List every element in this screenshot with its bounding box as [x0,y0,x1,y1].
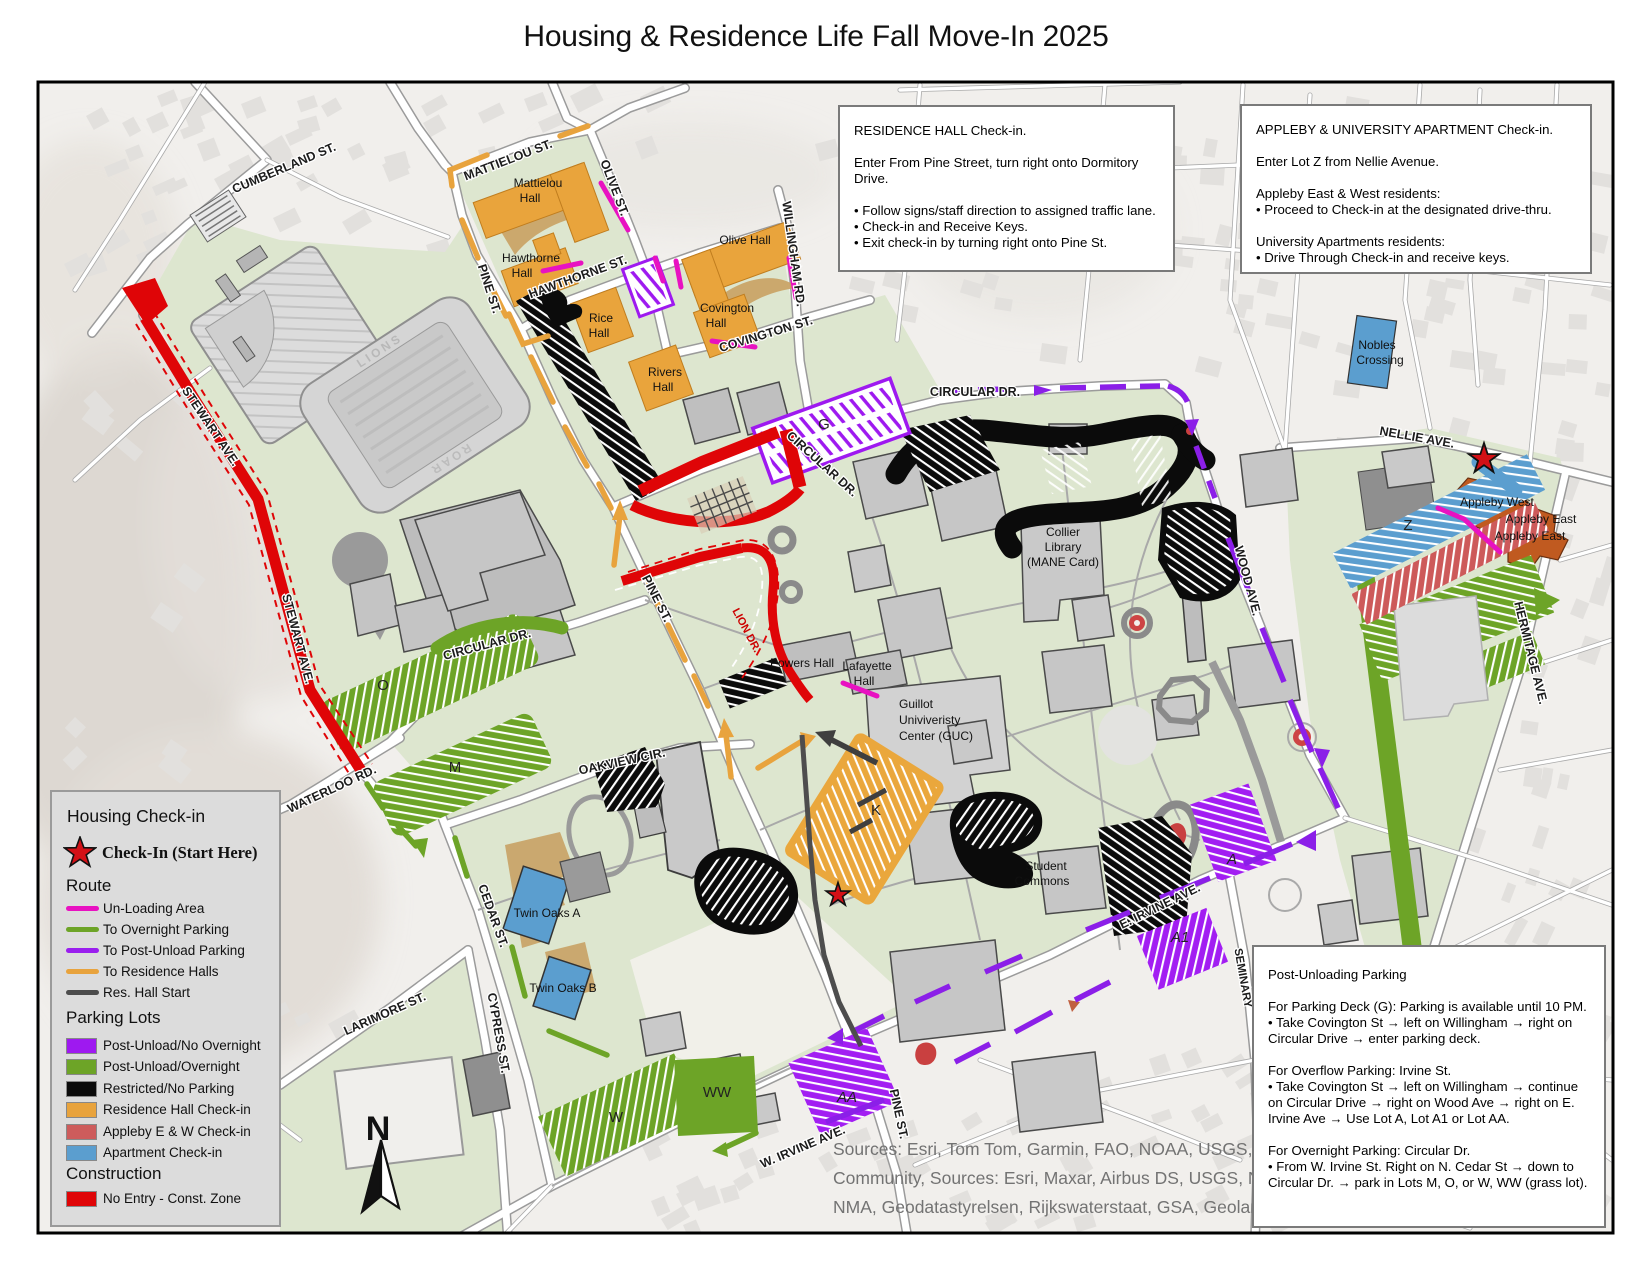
svg-text:Lafayette: Lafayette [842,659,892,673]
svg-text:A1: A1 [1170,929,1189,946]
svg-text:Center (GUC): Center (GUC) [899,729,973,743]
svg-text:Univiveristy: Univiveristy [899,713,960,727]
svg-text:(MANE Card): (MANE Card) [1027,555,1099,569]
svg-text:CIRCULAR DR.: CIRCULAR DR. [930,385,1020,399]
svg-text:Appleby West: Appleby West [1460,495,1534,509]
svg-text:Appleby East: Appleby East [1495,529,1566,543]
svg-text:Hall: Hall [520,191,541,205]
svg-text:W: W [609,1109,624,1126]
svg-text:Hawthorne: Hawthorne [502,251,560,265]
svg-text:Z: Z [1403,517,1412,534]
svg-text:A: A [1226,851,1237,868]
svg-text:N: N [366,1110,391,1148]
svg-text:Hall: Hall [653,380,674,394]
svg-text:G: G [818,416,830,433]
svg-text:Covington: Covington [700,301,754,315]
svg-text:Collier: Collier [1046,525,1080,539]
svg-text:Hall: Hall [706,316,727,330]
svg-text:Nobles: Nobles [1358,338,1395,352]
svg-text:O: O [377,677,389,694]
svg-text:Hall: Hall [589,326,610,340]
svg-text:Hall: Hall [854,674,875,688]
svg-text:Rivers: Rivers [648,365,682,379]
svg-text:Commons: Commons [1015,874,1070,888]
svg-text:Powers Hall: Powers Hall [770,656,834,670]
svg-text:Appleby East: Appleby East [1506,512,1577,526]
svg-text:Student: Student [1025,859,1067,873]
svg-text:K: K [871,802,881,819]
svg-text:WW: WW [703,1084,732,1101]
svg-text:Olive Hall: Olive Hall [719,233,770,247]
svg-text:Guillot: Guillot [899,697,934,711]
svg-text:Crossing: Crossing [1356,353,1403,367]
svg-text:Hall: Hall [512,266,533,280]
svg-text:M: M [449,759,462,776]
svg-text:AA: AA [836,1089,857,1106]
svg-text:Mattielou: Mattielou [514,176,563,190]
svg-text:Twin Oaks A: Twin Oaks A [514,906,581,920]
svg-text:Library: Library [1045,540,1082,554]
svg-text:Twin Oaks B: Twin Oaks B [529,981,596,995]
svg-text:Rice: Rice [589,311,613,325]
